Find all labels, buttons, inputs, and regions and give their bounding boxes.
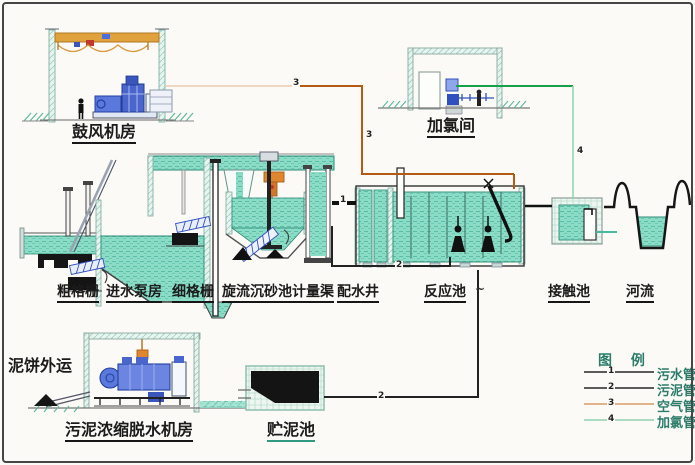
screenings-bin-icon [172, 233, 198, 245]
river-drawing [604, 181, 690, 248]
chlorination-room-drawing [378, 48, 530, 118]
chlorinator-cabinet-icon [419, 72, 440, 109]
sludge-storage-tank-drawing [238, 366, 324, 410]
sludge-pipe-marker: 2 [395, 261, 403, 270]
dewatering-room-label: 污泥浓缩脱水机房 [65, 421, 193, 442]
sludge-pipe-marker: 2 [377, 392, 385, 401]
outlet-weir [584, 209, 596, 240]
reaction-tank-mark: ~ [475, 282, 485, 296]
air-pipe-marker: 3 [292, 79, 300, 88]
operator-figure-icon [78, 98, 83, 119]
grit-chamber-label: 旋流沉砂池 [222, 284, 292, 303]
distribution-well-cell [359, 190, 372, 262]
sewage-pipe-marker: 1 [339, 196, 347, 205]
hoist-icon [137, 339, 148, 359]
belt-press-icon [94, 356, 190, 406]
reaction-tank-label: 反应池 [424, 284, 466, 303]
process-flow-diagram: 鼓风机房 加氯间 粗格栅 进水泵房 细格栅 旋流沉砂池 计量渠 配水井 反应池 … [0, 0, 695, 465]
distribution-well-label: 配水井 [337, 284, 379, 303]
crane-beam-icon [55, 33, 159, 52]
chlorine-pipe-marker: 4 [576, 147, 584, 156]
measuring-channel-drawing [303, 165, 332, 263]
sludge-storage-tank-label: 贮泥池 [267, 421, 315, 442]
river-label: 河流 [626, 284, 654, 303]
fine-screen-label: 细格栅 [172, 284, 214, 303]
contact-tank-drawing [552, 198, 617, 244]
legend-num-3: 3 [607, 399, 615, 408]
coarse-screen-label: 粗格栅 [57, 284, 99, 303]
measuring-channel-label: 计量渠 [292, 284, 334, 303]
chlorination-equipment-icon [446, 79, 494, 114]
inlet-channel-water [22, 236, 98, 254]
air-pipe-marker: 3 [365, 131, 373, 140]
blower-room-drawing [22, 29, 194, 122]
gate-slot [397, 168, 404, 218]
legend-num-4: 4 [607, 415, 615, 424]
inlet-pump-house-label: 进水泵房 [106, 284, 162, 303]
sludge-cake-out-label: 泥饼外运 [8, 357, 72, 375]
distribution-well-cell [374, 190, 387, 262]
chlorination-room-label: 加氯间 [427, 117, 475, 138]
legend-lines [584, 372, 654, 420]
diagram-canvas [0, 0, 695, 465]
blower-room-label: 鼓风机房 [72, 123, 136, 144]
legend-label-chlorine: 加氯管 [657, 412, 695, 431]
contact-tank-label: 接触池 [548, 284, 590, 303]
legend-num-2: 2 [607, 383, 615, 392]
legend-num-1: 1 [607, 367, 615, 376]
reaction-tank-drawing [355, 168, 525, 267]
